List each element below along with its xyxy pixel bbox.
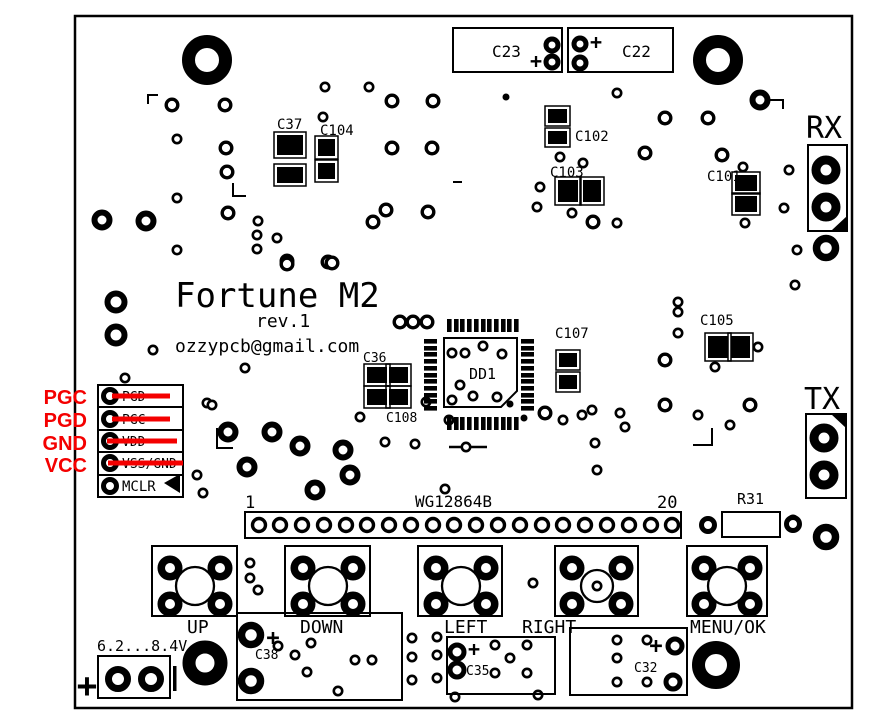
polarity-bar [173, 666, 177, 691]
pin-1-label: 1 [245, 493, 255, 513]
ref-label: C108 [386, 411, 417, 426]
polarity-plus: + [649, 634, 662, 659]
board-revision: rev.1 [256, 311, 310, 332]
ref-label: C102 [575, 129, 609, 145]
pin-20-label: 20 [657, 493, 677, 513]
button-label: RIGHT [522, 617, 576, 638]
annotation-vcc: VCC [45, 455, 87, 477]
ref-label: C37 [277, 117, 302, 133]
ref-label: C32 [634, 661, 657, 676]
annotation-gnd: GND [43, 433, 87, 455]
polarity-plus: + [77, 666, 97, 706]
ref-label: C23 [492, 42, 521, 61]
ref-label: C22 [622, 42, 651, 61]
rx-label: RX [806, 111, 842, 146]
ref-label: C107 [555, 326, 589, 342]
pin-label-mclr: MCLR [122, 479, 156, 495]
polarity-plus: + [468, 637, 480, 661]
ref-label: C38 [255, 648, 278, 663]
ref-label: DD1 [469, 365, 496, 383]
board-title: Fortune M2 [175, 276, 380, 316]
capacitor-c37: C37 [274, 117, 306, 186]
button-label: UP [187, 617, 209, 638]
button-label: LEFT [444, 617, 488, 638]
tx-label: TX [804, 382, 840, 417]
annotation-pgc: PGC [44, 387, 87, 409]
polarity-plus: + [590, 30, 602, 54]
ref-label: C35 [466, 664, 489, 679]
voltage-range-label: 6.2...8.4V [97, 637, 187, 655]
annotation-pgd: PGD [44, 410, 87, 432]
lcd-label: WG12864B [415, 492, 492, 511]
button-label: MENU/OK [690, 617, 766, 638]
polarity-plus: + [530, 49, 542, 73]
ref-label: R31 [737, 490, 764, 508]
button-label: DOWN [300, 617, 343, 638]
board-email: ozzypcb@gmail.com [175, 336, 359, 357]
pcb-drawing-canvas: Fortune M2 rev.1 ozzypcb@gmail.com C23 +… [0, 0, 882, 727]
pcb-board-drawing: Fortune M2 rev.1 ozzypcb@gmail.com C23 +… [0, 0, 882, 727]
ref-label: C105 [700, 313, 734, 329]
